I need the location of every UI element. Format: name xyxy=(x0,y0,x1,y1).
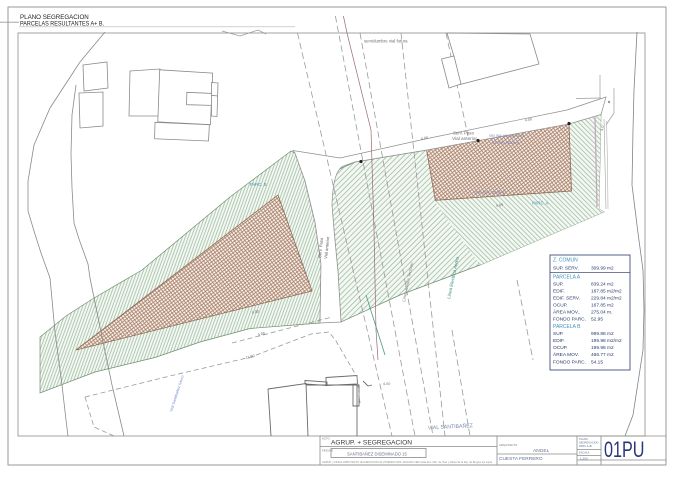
svg-text:FONDO PARC.: FONDO PARC. xyxy=(553,317,586,323)
svg-text:SUP. EDIF. 167.85 m2: SUP. EDIF. 167.85 m2 xyxy=(475,191,506,195)
svg-text:PARC. A: PARC. A xyxy=(532,201,549,206)
svg-text:199.98 m2: 199.98 m2 xyxy=(591,345,614,351)
svg-text:ARQUITECTO: ARQUITECTO xyxy=(499,443,518,447)
svg-text:4.00: 4.00 xyxy=(383,382,390,386)
svg-text:Serv. Paso: Serv. Paso xyxy=(453,131,475,136)
svg-text:FONDO PARC.: FONDO PARC. xyxy=(553,359,586,365)
svg-text:309.99 m2: 309.99 m2 xyxy=(591,266,614,272)
svg-text:EDIF.: EDIF. xyxy=(553,288,565,294)
svg-text:1:200: 1:200 xyxy=(580,456,588,460)
svg-text:275.04 m.: 275.04 m. xyxy=(591,310,612,316)
svg-text:ANGEL: ANGEL xyxy=(533,448,550,454)
svg-text:OCUP.: OCUP. xyxy=(553,345,568,351)
svg-text:SEGREGACION: SEGREGACION xyxy=(579,441,598,445)
svg-text:SUP. SERV.: SUP. SERV. xyxy=(553,266,579,272)
svg-text:EDIF. SERV.: EDIF. SERV. xyxy=(553,295,580,301)
svg-text:Vial anterior: Vial anterior xyxy=(452,136,478,141)
svg-text:167.85 m2: 167.85 m2 xyxy=(591,303,614,309)
svg-text:SANTIBAÑEZ DISEMINADO 15: SANTIBAÑEZ DISEMINADO 15 xyxy=(347,451,407,456)
svg-text:AGRUP. + SEGREGACION: AGRUP. + SEGREGACION xyxy=(331,439,412,446)
svg-text:229.84 m2/m2: 229.84 m2/m2 xyxy=(591,295,622,301)
svg-text:466.77 m2: 466.77 m2 xyxy=(591,352,614,358)
svg-text:PARCELA B: PARCELA B xyxy=(553,324,581,330)
svg-text:ESCALA: ESCALA xyxy=(579,451,590,455)
svg-text:PARC A+B: PARC A+B xyxy=(579,444,592,448)
svg-text:FINCA/S: FINCA/S xyxy=(322,449,333,453)
svg-text:PLANO: PLANO xyxy=(579,437,588,441)
svg-text:01PU: 01PU xyxy=(604,437,645,462)
svg-text:4.00: 4.00 xyxy=(257,331,265,337)
svg-text:11.50: 11.50 xyxy=(245,354,255,360)
svg-text:SRV. PAS. VIAL 100.15 m2: SRV. PAS. VIAL 100.15 m2 xyxy=(489,134,524,138)
svg-text:54.15: 54.15 xyxy=(591,359,603,365)
svg-text:SUP. PARC. A 839.24 m2: SUP. PARC. A 839.24 m2 xyxy=(492,141,519,145)
svg-text:VIAL SANTIBAÑEZ: VIAL SANTIBAÑEZ xyxy=(428,422,474,431)
svg-text:SUP.: SUP. xyxy=(553,331,564,337)
svg-text:52.95: 52.95 xyxy=(591,317,603,323)
svg-text:167.85 m2/m2: 167.85 m2/m2 xyxy=(591,288,622,294)
svg-text:SUP.: SUP. xyxy=(553,281,564,287)
svg-text:PARCELAS RESULTANTES A+ B.: PARCELAS RESULTANTES A+ B. xyxy=(20,20,104,27)
svg-text:ÁREA MOV.: ÁREA MOV. xyxy=(553,351,579,358)
svg-text:Vial Santibañez futuro: Vial Santibañez futuro xyxy=(169,375,185,412)
svg-text:ACTO: ACTO xyxy=(322,437,331,441)
svg-text:PARC. B: PARC. B xyxy=(250,182,267,187)
svg-text:EDIF.: EDIF. xyxy=(553,338,565,344)
svg-text:AGRUP. y FINCA s/PROYECTO de E: AGRUP. y FINCA s/PROYECTO de EJECUCION d… xyxy=(322,460,493,464)
svg-text:CUESTA FERRERO: CUESTA FERRERO xyxy=(499,456,543,462)
svg-text:199.98 m2/m2: 199.98 m2/m2 xyxy=(591,338,622,344)
svg-text:PARCELA A: PARCELA A xyxy=(553,274,581,280)
svg-text:999.88 m2: 999.88 m2 xyxy=(591,331,614,337)
svg-text:839.24 m2: 839.24 m2 xyxy=(591,281,614,287)
svg-text:OCUP.: OCUP. xyxy=(553,303,568,309)
svg-text:ÁREA MOV..: ÁREA MOV.. xyxy=(553,309,580,316)
svg-text:servidumbre vial futura: servidumbre vial futura xyxy=(364,39,408,44)
svg-text:Z. COMUN: Z. COMUN xyxy=(553,258,578,264)
